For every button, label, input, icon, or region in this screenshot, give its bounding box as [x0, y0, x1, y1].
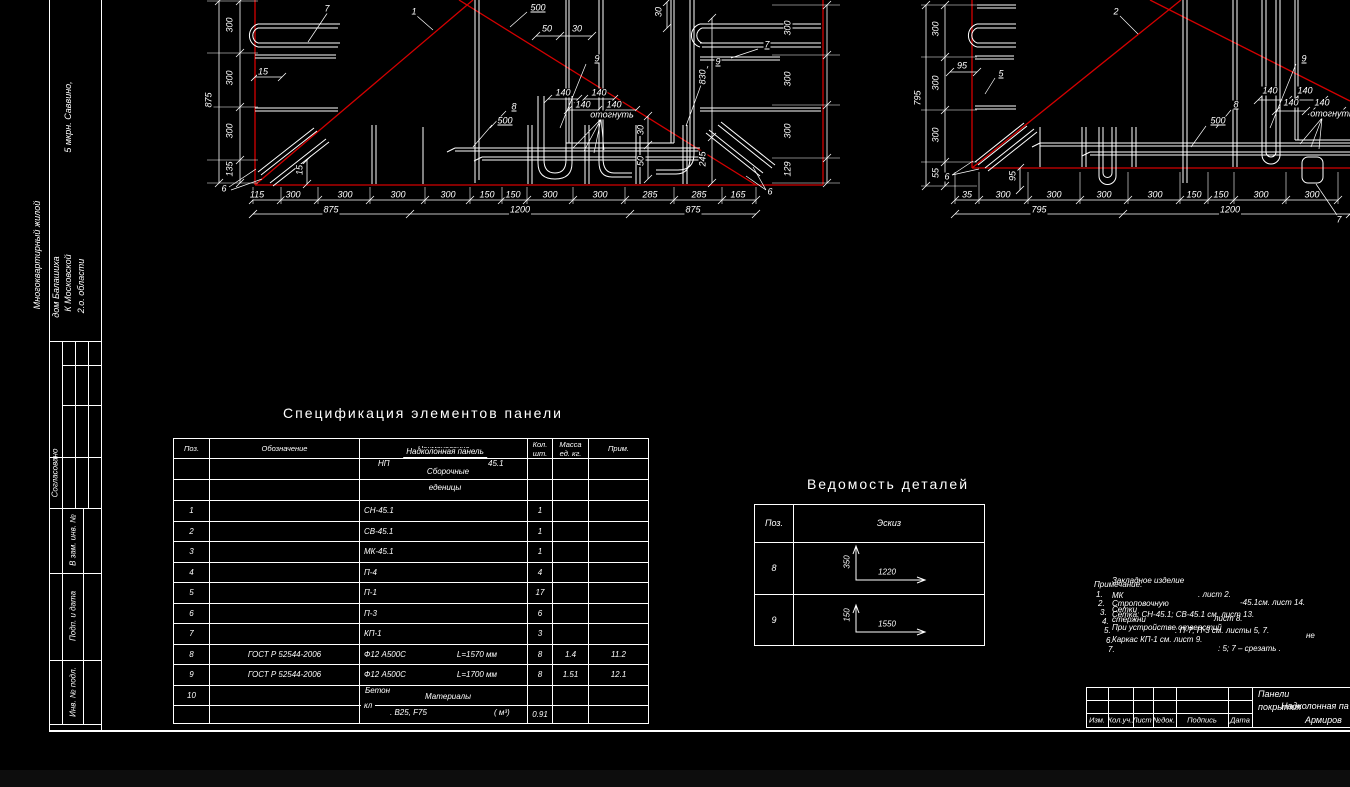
- dim-label: 300: [591, 191, 608, 200]
- tb-col-data: Дата: [1230, 716, 1250, 725]
- spec-row: [174, 480, 649, 501]
- spec-row: 6П-36: [174, 603, 649, 624]
- spec-group2: Сборочные: [424, 468, 472, 476]
- tb-col-koluch: Кол.уч.: [1108, 716, 1132, 725]
- dim-label: лист 8.: [1214, 615, 1243, 623]
- dim-label: 300: [932, 126, 941, 143]
- spec-row: 7КП-13: [174, 624, 649, 645]
- tb-col-izm: Изм.: [1089, 716, 1105, 725]
- spec-table-title: Спецификация элементов панели: [256, 405, 590, 421]
- dim-label: 9: [1300, 55, 1307, 64]
- dim-label: 140: [605, 101, 622, 110]
- spec-unit: ( м³): [494, 709, 510, 717]
- dim-label: 5.: [1104, 627, 1111, 635]
- sketch-dim-h: 1220: [878, 568, 896, 577]
- dim-label: 140: [554, 89, 571, 98]
- dim-label: 165: [729, 191, 746, 200]
- dim-label: 300: [1095, 191, 1112, 200]
- dim-label: 95: [956, 62, 968, 71]
- spec-code-num: 45.1: [488, 460, 504, 468]
- dim-label: 30: [637, 124, 646, 136]
- spec-code: НП: [378, 460, 390, 468]
- dim-label: 9: [714, 58, 721, 67]
- dim-label: 300: [284, 191, 301, 200]
- dim-label: : 5; 7 – срезать .: [1218, 645, 1281, 653]
- dim-label: отогнуть: [1309, 110, 1350, 119]
- dim-label: 15: [296, 164, 305, 176]
- dim-label: -45.1см. лист 14.: [1240, 599, 1305, 607]
- dim-label: 285: [690, 191, 707, 200]
- spec-row: 4П-44: [174, 562, 649, 583]
- spec-row: [174, 459, 649, 480]
- dim-label: 1200: [1219, 206, 1241, 215]
- dim-label: 3.: [1100, 609, 1107, 617]
- dim-label: 1: [410, 8, 417, 17]
- spec-row: 10: [174, 685, 649, 706]
- tb-col-list: Лист: [1132, 716, 1151, 725]
- dim-label: 875: [205, 91, 214, 108]
- dim-label: 150: [1212, 191, 1229, 200]
- dim-label: 795: [1030, 206, 1047, 215]
- dim-label: 1200: [509, 206, 531, 215]
- dim-label: Каркас КП-1 см. лист 9.: [1112, 636, 1202, 644]
- dim-label: 300: [784, 122, 793, 139]
- spec-grade: . В25, F75: [390, 709, 427, 717]
- dim-label: 300: [784, 19, 793, 36]
- dim-label: 300: [336, 191, 353, 200]
- spec-row: 3МК-45.11: [174, 542, 649, 563]
- dim-label: 300: [1252, 191, 1269, 200]
- dim-label: 300: [389, 191, 406, 200]
- dim-label: 7: [323, 5, 330, 14]
- spec-beton: Бетон: [362, 687, 393, 695]
- dim-label: 140: [1313, 99, 1330, 108]
- spec-group-title: Надколонная панель: [403, 448, 487, 458]
- dim-label: 300: [1045, 191, 1062, 200]
- spec-header-mass: Массаед. кг.: [553, 439, 589, 459]
- dim-label: 2.: [1098, 600, 1105, 608]
- spec-kl: кл: [361, 702, 375, 710]
- dim-label: 300: [226, 122, 235, 139]
- dim-label: 500: [496, 117, 513, 126]
- dim-label: 5: [997, 70, 1004, 79]
- dim-label: 140: [1261, 87, 1278, 96]
- dim-label: 875: [322, 206, 339, 215]
- dim-label: 300: [932, 20, 941, 37]
- spec-header-note: Прим.: [589, 439, 649, 459]
- tb-doc-line2-overlay: Надколонная па: [1281, 701, 1349, 711]
- dim-label: 2: [1112, 8, 1119, 17]
- dim-label: 150: [478, 191, 495, 200]
- spec-row: 2СВ-45.11: [174, 521, 649, 542]
- dim-label: 15: [257, 68, 269, 77]
- dim-label: 95: [1009, 170, 1018, 182]
- details-table-title: Ведомость деталей: [788, 476, 988, 492]
- details-table: Поз. Эскиз 8 9 350 1220 150 1550: [754, 504, 985, 646]
- dim-label: 300: [784, 70, 793, 87]
- dim-label: 300: [226, 69, 235, 86]
- dim-label: 50: [637, 155, 646, 167]
- dim-label: 30: [571, 25, 583, 34]
- spec-group2b: еденицы: [429, 484, 462, 492]
- dim-label: 285: [641, 191, 658, 200]
- dim-label: 8: [510, 103, 517, 112]
- dim-label: 300: [932, 74, 941, 91]
- dim-label: 140: [590, 89, 607, 98]
- spec-header-qty: Кол.шт.: [528, 439, 553, 459]
- dim-label: 115: [249, 191, 265, 200]
- dim-label: 140: [574, 101, 591, 110]
- dim-label: 6: [943, 173, 950, 182]
- dim-label: 150: [1185, 191, 1202, 200]
- dim-label: : П-7; П-3 см. листы 5, 7.: [1175, 627, 1269, 635]
- detail-sketches: [754, 504, 985, 646]
- dim-label: 300: [994, 191, 1011, 200]
- dim-label: 830: [699, 68, 708, 85]
- spec-table: Поз. Обозначение Наименование Кол.шт. Ма…: [173, 438, 649, 724]
- dim-label: 300: [1146, 191, 1163, 200]
- dim-label: 6: [766, 188, 773, 197]
- dim-label: 7.: [1108, 646, 1115, 654]
- cad-sheet: 7150030503099715875300300300135830245305…: [0, 0, 1350, 787]
- dim-label: 300: [226, 16, 235, 33]
- spec-header-pos: Поз.: [174, 439, 210, 459]
- dim-label: 500: [1209, 117, 1226, 126]
- sketch-dim-v: 150: [843, 608, 852, 621]
- dim-label: 135: [226, 160, 235, 177]
- dim-label: 500: [529, 4, 546, 13]
- dim-label: 140: [1296, 87, 1313, 96]
- dim-label: 129: [784, 160, 793, 177]
- dim-label: 1.: [1096, 591, 1103, 599]
- spec-row: 9ГОСТ Р 52544-2006Ф12 А500СL=1700 мм81.5…: [174, 665, 649, 686]
- dim-label: 875: [684, 206, 701, 215]
- tb-col-podpis: Подпись: [1187, 716, 1217, 725]
- dim-label: 300: [439, 191, 456, 200]
- dim-label: 35: [961, 191, 973, 200]
- tb-doc-line1: Панели: [1258, 689, 1289, 699]
- spec-materials-label: Материалы: [425, 693, 471, 701]
- dim-label: 4.: [1102, 618, 1109, 626]
- dim-label: 300: [1303, 191, 1320, 200]
- dim-label: Примечание:: [1094, 581, 1142, 589]
- dim-label: 7: [1335, 216, 1342, 225]
- dim-label: 55: [932, 167, 941, 179]
- dim-label: . лист 2.: [1198, 591, 1231, 599]
- dim-label: не: [1306, 632, 1315, 640]
- tb-doc-line3: Армиров: [1305, 715, 1342, 725]
- dim-label: 7: [763, 41, 770, 50]
- sketch-dim-v: 350: [843, 555, 852, 568]
- dim-label: 300: [541, 191, 558, 200]
- tb-col-ndok: №док.: [1153, 716, 1175, 725]
- dim-label: 30: [655, 6, 664, 18]
- spec-header-designation: Обозначение: [210, 439, 360, 459]
- dim-label: 795: [914, 89, 923, 106]
- spec-row: 8ГОСТ Р 52544-2006Ф12 А500СL=1570 мм81.4…: [174, 644, 649, 665]
- dim-label: 140: [1282, 99, 1299, 108]
- spec-row: 1СН-45.11: [174, 501, 649, 522]
- dim-label: отогнуть: [589, 111, 635, 120]
- dim-label: 245: [699, 150, 708, 167]
- dim-label: 9: [593, 55, 600, 64]
- dim-label: 150: [504, 191, 521, 200]
- dim-label: 8: [1232, 101, 1239, 110]
- spec-row: 5П-117: [174, 583, 649, 604]
- title-block: Изм. Кол.уч. Лист №док. Подпись Дата Пан…: [1086, 687, 1350, 728]
- dim-label: 50: [541, 25, 553, 34]
- dim-label: 6: [220, 185, 227, 194]
- sketch-dim-h: 1550: [878, 620, 896, 629]
